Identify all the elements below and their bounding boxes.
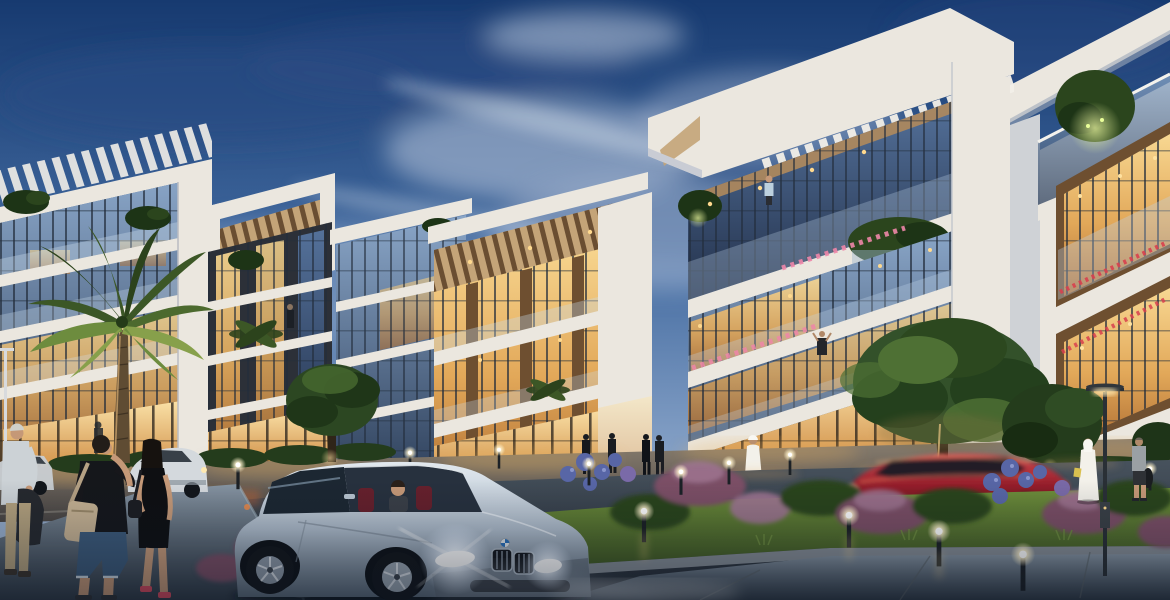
vignette [0, 0, 1170, 600]
scene-canvas [0, 0, 1170, 600]
architectural-rendering [0, 0, 1170, 600]
